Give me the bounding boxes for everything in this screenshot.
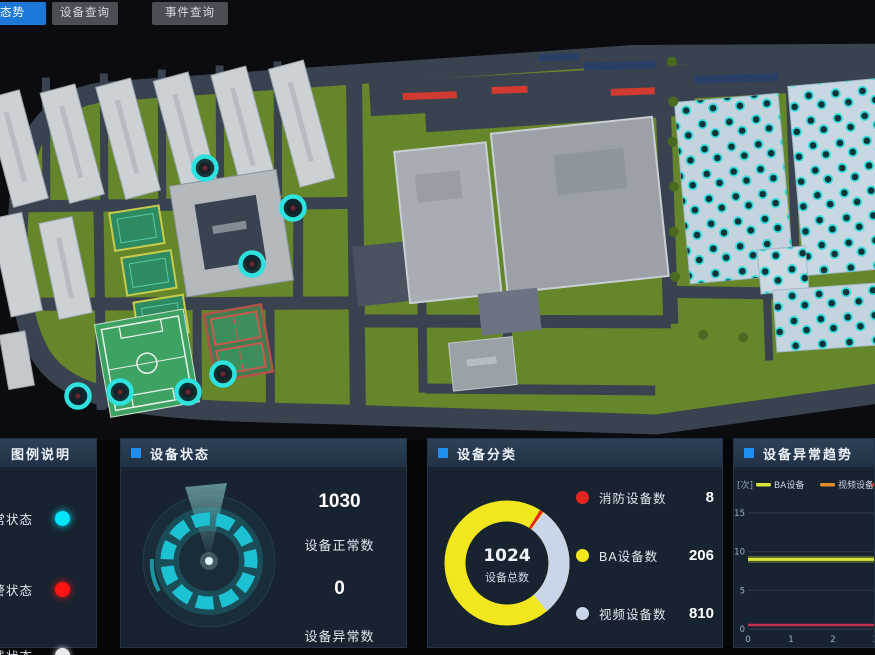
device-status-title: 设备状态 bbox=[150, 444, 210, 463]
device-category-panel: 设备分类 1024 设备总数 消防设备数 8 BA设备数 206 视频设备数 8… bbox=[427, 438, 723, 648]
legend-panel: 图例说明 正常状态 报警状态 离线状态 bbox=[0, 438, 97, 648]
device-status-stats: 1030 设备正常数 0 设备异常数 bbox=[279, 473, 400, 645]
video-legend-label: 视频设备 bbox=[838, 479, 874, 491]
device-status-panel: 设备状态 1030 设备正常数 0 设备异常数 bbox=[120, 438, 407, 648]
device-marker[interactable] bbox=[280, 195, 306, 221]
abnormal-trend-line-chart[interactable]: [次] BA设备 视频设备 15 10 5 0 0 1 2 3 bbox=[734, 471, 875, 648]
campus-3d-map[interactable] bbox=[0, 0, 875, 440]
category-item-video: 视频设备数 810 bbox=[576, 603, 714, 623]
alarm-status-dot bbox=[55, 582, 70, 597]
legend-label: 离线状态 bbox=[0, 646, 33, 655]
fire-dot bbox=[576, 491, 589, 504]
radar-gauge bbox=[129, 473, 289, 645]
header-square-icon bbox=[744, 448, 754, 458]
device-category-donut-chart[interactable]: 1024 设备总数 bbox=[432, 473, 582, 645]
y-tick-0: 0 bbox=[740, 625, 745, 635]
device-category-title: 设备分类 bbox=[457, 444, 517, 463]
device-marker[interactable] bbox=[175, 379, 201, 405]
campus-ground bbox=[0, 39, 875, 440]
tab-event-query[interactable]: 事件查询 bbox=[152, 2, 228, 25]
legend-label: 正常状态 bbox=[0, 509, 33, 528]
device-marker[interactable] bbox=[65, 383, 91, 409]
device-marker[interactable] bbox=[107, 379, 133, 405]
video-legend-swatch bbox=[820, 483, 835, 487]
map-area bbox=[0, 0, 875, 440]
unit-label: [次] bbox=[737, 479, 753, 491]
legend-label: 报警状态 bbox=[0, 580, 33, 599]
header-square-icon bbox=[438, 448, 448, 458]
donut-total-label: 设备总数 bbox=[485, 570, 529, 584]
header-square-icon bbox=[131, 448, 141, 458]
courtyard-building bbox=[169, 169, 293, 297]
category-item-fire: 消防设备数 8 bbox=[576, 487, 714, 507]
y-tick-5: 5 bbox=[740, 586, 745, 596]
normal-count-value: 1030 bbox=[318, 491, 360, 513]
video-value: 810 bbox=[689, 605, 714, 622]
legend-panel-header: 图例说明 bbox=[0, 439, 96, 467]
y-tick-10: 10 bbox=[734, 548, 745, 558]
abnormal-trend-panel: 设备异常趋势 [次] BA设备 视频设备 15 10 5 0 0 1 2 3 bbox=[733, 438, 875, 648]
fire-label: 消防设备数 bbox=[599, 488, 696, 507]
x-tick-1: 1 bbox=[788, 635, 793, 645]
y-tick-15: 15 bbox=[734, 509, 745, 519]
tab-device-query[interactable]: 设备查询 bbox=[52, 2, 118, 25]
ba-value: 206 bbox=[689, 547, 714, 564]
ba-label: BA设备数 bbox=[599, 546, 679, 565]
device-category-header: 设备分类 bbox=[428, 439, 722, 467]
x-tick-2: 2 bbox=[830, 635, 835, 645]
legend-item-alarm: 报警状态 bbox=[0, 580, 96, 599]
donut-total-value: 1024 bbox=[483, 546, 530, 566]
device-marker[interactable] bbox=[239, 251, 265, 277]
device-status-header: 设备状态 bbox=[121, 439, 406, 467]
video-dot bbox=[576, 607, 589, 620]
abnormal-count-value: 0 bbox=[334, 578, 345, 600]
top-tab-bar: 综合态势 设备查询 事件查询 bbox=[0, 0, 875, 28]
tab-overview[interactable]: 综合态势 bbox=[0, 2, 46, 25]
grid-lines bbox=[748, 513, 875, 629]
fire-value: 8 bbox=[706, 489, 714, 506]
offline-status-dot bbox=[55, 648, 70, 655]
x-tick-0: 0 bbox=[745, 635, 750, 645]
legend-panel-title: 图例说明 bbox=[11, 444, 71, 463]
device-marker[interactable] bbox=[192, 155, 218, 181]
video-label: 视频设备数 bbox=[599, 604, 679, 623]
category-legend: 消防设备数 8 BA设备数 206 视频设备数 810 bbox=[576, 487, 714, 655]
legend-item-normal: 正常状态 bbox=[0, 509, 96, 528]
normal-count-label: 设备正常数 bbox=[304, 535, 374, 554]
ba-dot bbox=[576, 549, 589, 562]
category-item-ba: BA设备数 206 bbox=[576, 545, 714, 565]
abnormal-trend-header: 设备异常趋势 bbox=[734, 439, 874, 467]
abnormal-trend-title: 设备异常趋势 bbox=[763, 444, 853, 463]
legend-item-offline: 离线状态 bbox=[0, 646, 96, 655]
ba-legend-swatch bbox=[756, 483, 771, 487]
abnormal-count-label: 设备异常数 bbox=[304, 626, 374, 645]
ba-legend-label: BA设备 bbox=[774, 479, 804, 491]
normal-status-dot bbox=[55, 511, 70, 526]
device-marker[interactable] bbox=[210, 361, 236, 387]
